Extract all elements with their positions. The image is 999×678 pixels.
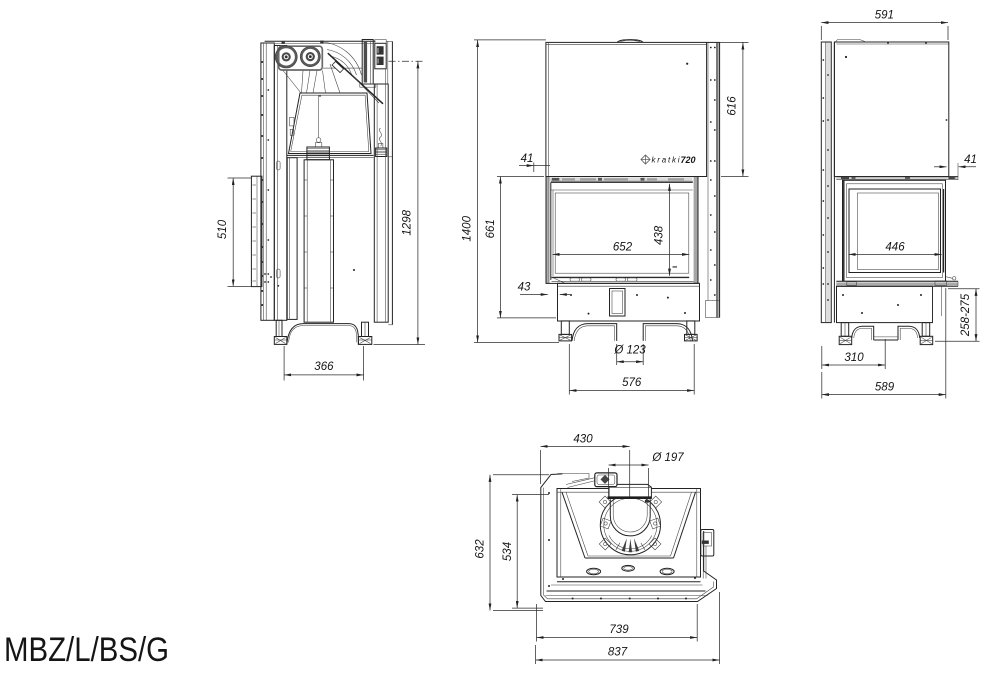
svg-text:438: 438 (653, 225, 665, 245)
svg-text:510: 510 (217, 219, 229, 239)
svg-text:Ø 123: Ø 123 (613, 345, 646, 357)
svg-text:446: 446 (885, 241, 905, 253)
svg-text:310: 310 (844, 352, 864, 364)
svg-text:366: 366 (314, 361, 334, 373)
svg-text:41: 41 (964, 154, 977, 166)
svg-text:739: 739 (609, 624, 629, 636)
svg-text:258-275: 258-275 (960, 293, 972, 337)
svg-text:Ø 197: Ø 197 (651, 452, 684, 464)
svg-text:MBZ/L/BS/G: MBZ/L/BS/G (4, 631, 169, 669)
svg-text:616: 616 (727, 96, 739, 116)
svg-text:632: 632 (475, 539, 487, 559)
svg-text:534: 534 (502, 542, 514, 561)
svg-text:1298: 1298 (402, 209, 414, 235)
svg-text:43: 43 (518, 282, 531, 294)
svg-text:652: 652 (613, 242, 633, 254)
svg-text:41: 41 (521, 153, 534, 165)
svg-text:576: 576 (622, 377, 642, 389)
svg-text:430: 430 (573, 433, 593, 445)
svg-text:1400: 1400 (461, 215, 473, 241)
svg-text:720: 720 (681, 155, 696, 165)
svg-text:661: 661 (485, 219, 497, 238)
svg-text:591: 591 (875, 10, 894, 22)
svg-text:kratki: kratki (652, 156, 680, 165)
svg-text:589: 589 (875, 381, 895, 393)
svg-text:837: 837 (608, 647, 628, 659)
